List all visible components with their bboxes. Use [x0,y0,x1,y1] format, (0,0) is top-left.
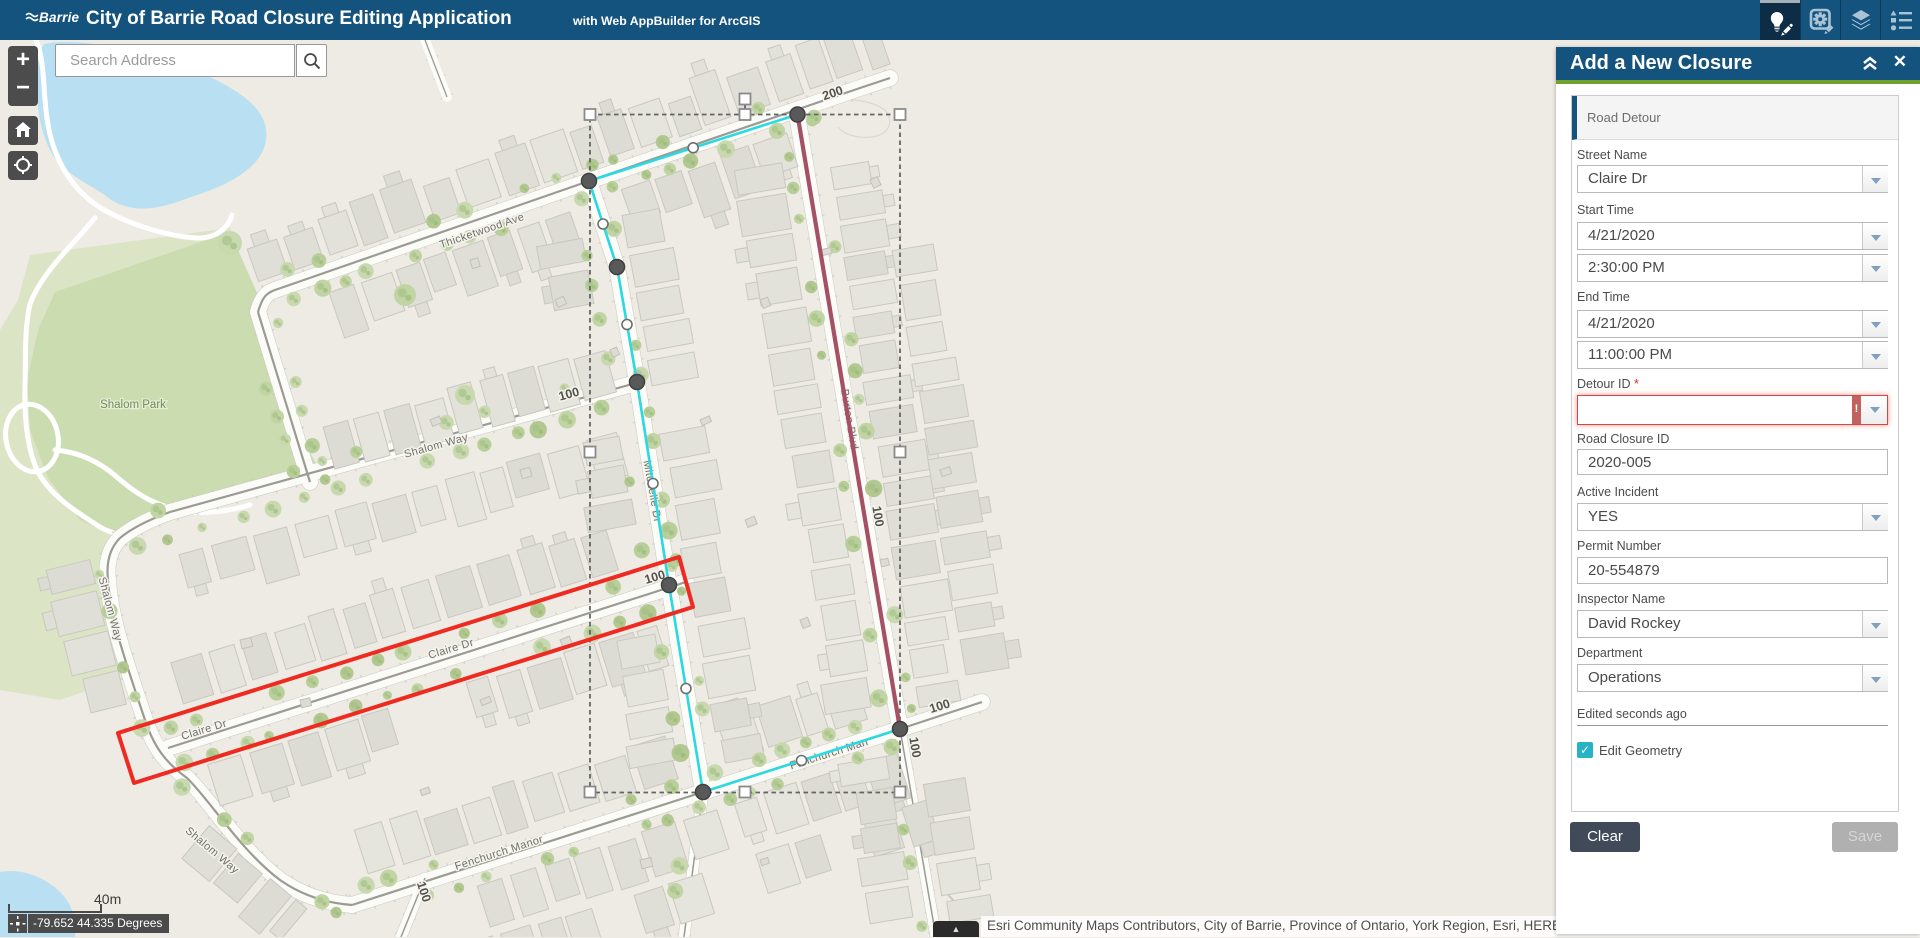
svg-text:Shalom Park: Shalom Park [100,399,166,411]
